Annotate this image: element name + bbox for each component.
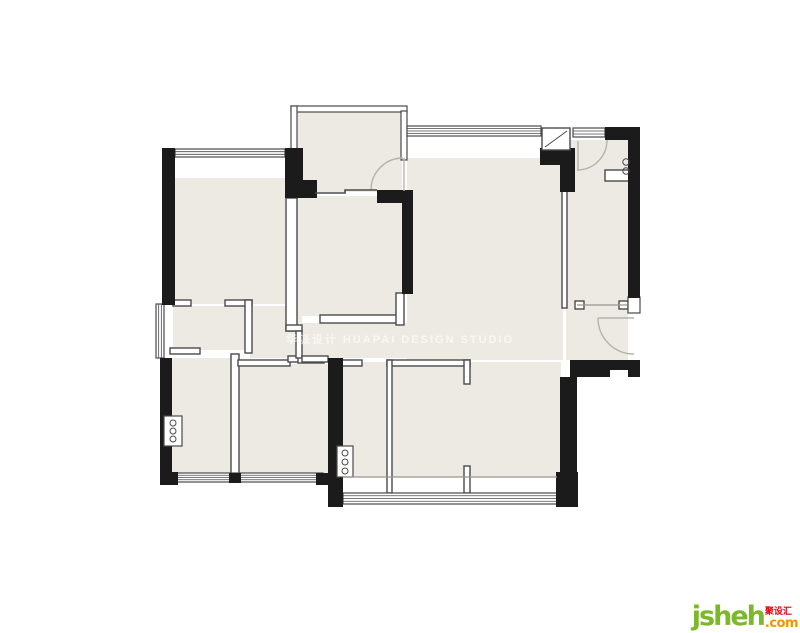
room-fill: [300, 323, 408, 358]
wall-notch: [610, 370, 628, 377]
window: [175, 149, 285, 157]
logo-cjk-text: 聚设汇: [765, 607, 792, 616]
window: [573, 128, 605, 137]
partition-wall: [605, 170, 630, 181]
partition-wall: [302, 356, 328, 362]
wall-segment: [628, 140, 640, 298]
balcony-railing-wall: [291, 106, 407, 112]
partition-wall: [286, 198, 297, 331]
window: [156, 304, 164, 358]
wall-segment: [229, 473, 241, 483]
wall-segment: [160, 472, 178, 485]
partition-wall: [296, 331, 302, 358]
floor-plan-stage: [0, 0, 800, 633]
wall-segment: [605, 127, 640, 140]
logo-tld-text: .com: [765, 617, 798, 630]
site-logo: jsheh 聚设汇 .com: [692, 603, 798, 630]
wall-segment: [560, 377, 577, 475]
wall-segment: [297, 180, 317, 198]
logo-stack: 聚设汇 .com: [765, 607, 798, 630]
fixture-box: [337, 446, 353, 477]
wall-segment: [560, 165, 575, 192]
partition-wall: [342, 360, 362, 366]
room-fill: [407, 158, 563, 360]
partition-wall: [562, 190, 567, 308]
floor-plan-page: 华派设计 HUAPAI DESIGN STUDIO jsheh 聚设汇 .com: [0, 0, 800, 633]
wall-segment: [402, 190, 413, 294]
room-fill: [342, 362, 561, 477]
room-fill: [297, 196, 403, 316]
wall-segment: [556, 472, 578, 507]
partition-wall: [387, 360, 470, 366]
partition-wall: [387, 360, 392, 493]
partition-wall: [464, 360, 470, 384]
partition-wall: [170, 348, 200, 354]
partition-wall: [231, 354, 239, 475]
partition-wall: [173, 300, 191, 306]
wall-segment: [162, 148, 175, 305]
partition-wall: [245, 300, 252, 353]
logo-brand-text: jsheh: [692, 603, 764, 630]
room-fill: [237, 364, 328, 474]
window: [628, 297, 640, 313]
balcony-railing-wall: [401, 111, 407, 160]
wall-segment: [328, 358, 343, 507]
floor-plan-svg: [0, 0, 800, 633]
wall-segment: [316, 473, 328, 485]
partition-wall: [320, 315, 398, 323]
room-fill: [173, 306, 247, 350]
partition-wall: [464, 466, 470, 493]
room-fill: [175, 178, 285, 304]
partition-wall: [396, 293, 404, 325]
partition-wall: [286, 325, 302, 331]
partition-wall: [238, 360, 290, 366]
wall-segment: [570, 360, 640, 377]
